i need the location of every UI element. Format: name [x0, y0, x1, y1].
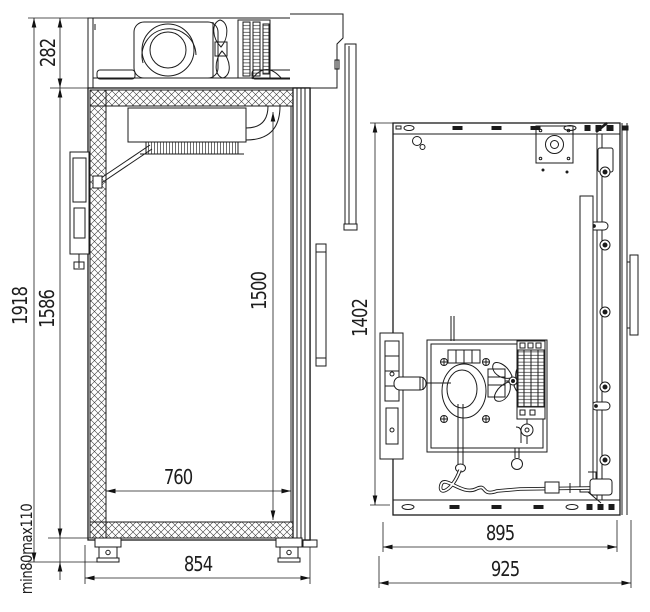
hinge-screw: [600, 167, 610, 177]
condenser-coil-rear: [517, 341, 545, 419]
rear-view: [370, 123, 638, 588]
dim-label-854: 854: [184, 554, 212, 574]
insulation-top: [90, 90, 293, 106]
air-duct-elbow: [246, 106, 280, 140]
door-edge-flange: [622, 123, 638, 515]
dim-label-1918: 1918: [10, 287, 30, 325]
door-handle-side: [316, 244, 326, 366]
dim-label-282: 282: [38, 39, 58, 67]
condenser-coil-side: [238, 20, 270, 78]
mounting-bolt: [441, 359, 448, 366]
evaporator: [128, 108, 246, 154]
dim-label-1500: 1500: [249, 272, 269, 310]
pipe-valve: [545, 482, 559, 493]
pipe-elbow: [590, 479, 612, 495]
insulation-back: [90, 90, 106, 538]
door-bottom-bracket: [303, 540, 317, 547]
hinge-screw: [600, 382, 610, 392]
insulation-bottom: [90, 522, 293, 538]
hinge-screw: [600, 455, 610, 465]
panel-dot: [542, 169, 544, 171]
dim-label-1586: 1586: [37, 290, 57, 328]
drawing-linework: [0, 0, 650, 612]
panel-dot: [566, 171, 568, 173]
interior-liner: [106, 106, 291, 522]
rear-bracket: [70, 152, 89, 269]
condenser-fan-side-icon: [213, 20, 229, 78]
compartment-cover-edge: [344, 44, 357, 230]
mounting-bolt: [483, 359, 490, 366]
dim-label-leg-adjustment: min80max110: [19, 504, 35, 595]
mounting-bolt: [483, 416, 490, 423]
mounting-bolt: [441, 416, 448, 423]
dim-label-1402: 1402: [350, 299, 370, 337]
machine-compartment-cover: [290, 14, 343, 88]
dim-label-925: 925: [491, 559, 519, 579]
compressor-side: [134, 22, 218, 78]
side-section-view: [28, 14, 357, 584]
dim-label-760: 760: [164, 467, 192, 487]
hinge-screw: [600, 240, 610, 250]
hinge-screw: [600, 307, 610, 317]
adjustable-leg-front: [276, 538, 302, 562]
door-panel: [293, 88, 317, 547]
cabinet-body: [88, 88, 310, 540]
dim-label-895: 895: [486, 523, 514, 543]
door-handle-rear: [630, 255, 638, 335]
evaporator-fins: [146, 142, 238, 154]
lower-hinge-bracket: [380, 333, 403, 459]
adjustable-leg-rear: [95, 538, 121, 562]
technical-drawing-canvas: 282 1918 1586 1500 min80max110 760 854 1…: [0, 0, 650, 612]
